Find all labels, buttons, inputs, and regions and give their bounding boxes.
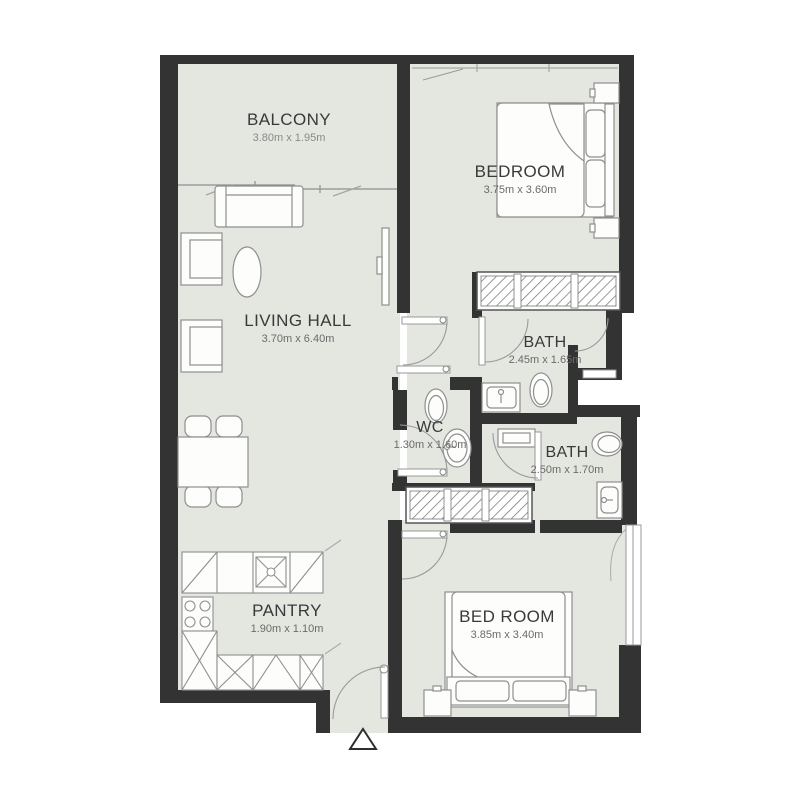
- wall-right-bedroom1: [619, 55, 634, 313]
- wall-bath1-right: [606, 300, 622, 370]
- bedroom2-name: BED ROOM: [437, 608, 577, 627]
- bath2-name: BATH: [507, 444, 627, 462]
- balcony-name: BALCONY: [219, 111, 359, 130]
- wall-bedroom2-left: [388, 520, 402, 733]
- wall-wardrobe2-top: [392, 483, 535, 491]
- bath1-name: BATH: [485, 334, 605, 352]
- wall-bath2-top: [477, 413, 577, 424]
- building-notch: [577, 380, 640, 405]
- room-label-bedroom2: BED ROOM 3.85m x 3.40m: [437, 608, 577, 641]
- bedroom2-dims: 3.85m x 3.40m: [437, 629, 577, 641]
- wall-entrance-step: [316, 690, 330, 733]
- room-label-bath2: BATH 2.50m x 1.70m: [507, 444, 627, 476]
- wall-pantry-bottom: [160, 690, 330, 703]
- wc-name: WC: [370, 419, 490, 437]
- wall-wc-top-left: [392, 377, 398, 390]
- bath2-dims: 2.50m x 1.70m: [507, 464, 627, 476]
- floor-plan: BALCONY 3.80m x 1.95m BEDROOM 3.75m x 3.…: [0, 0, 800, 800]
- living-hall-name: LIVING HALL: [228, 312, 368, 331]
- room-label-pantry: PANTRY 1.90m x 1.10m: [227, 602, 347, 635]
- room-label-wc: WC 1.30m x 1.60m: [370, 419, 490, 451]
- balcony-dims: 3.80m x 1.95m: [219, 132, 359, 144]
- wall-left: [160, 55, 178, 703]
- pantry-dims: 1.90m x 1.10m: [227, 623, 347, 635]
- room-label-bath1: BATH 2.45m x 1.65m: [485, 334, 605, 366]
- wall-bath2-bottom: [540, 520, 622, 533]
- room-label-bedroom1: BEDROOM 3.75m x 3.60m: [450, 163, 590, 196]
- wall-bath1-bottom-right: [568, 405, 640, 417]
- living-hall-dims: 3.70m x 6.40m: [228, 333, 368, 345]
- wall-bedroom2-door-side: [450, 520, 535, 533]
- bedroom1-dims: 3.75m x 3.60m: [450, 184, 590, 196]
- room-label-living-hall: LIVING HALL 3.70m x 6.40m: [228, 312, 368, 345]
- floor-entrance-recess: [330, 690, 388, 733]
- wall-bath1-window: [577, 368, 622, 380]
- pantry-name: PANTRY: [227, 602, 347, 621]
- wall-living-bedroom-divider: [397, 62, 410, 313]
- wall-bedroom2-bottom: [388, 717, 641, 733]
- bedroom1-name: BEDROOM: [450, 163, 590, 182]
- wall-right-lower: [619, 645, 641, 733]
- bath1-dims: 2.45m x 1.65m: [485, 354, 605, 366]
- wc-dims: 1.30m x 1.60m: [370, 439, 490, 451]
- room-label-balcony: BALCONY 3.80m x 1.95m: [219, 111, 359, 144]
- wall-wardrobe1-stub: [472, 272, 482, 318]
